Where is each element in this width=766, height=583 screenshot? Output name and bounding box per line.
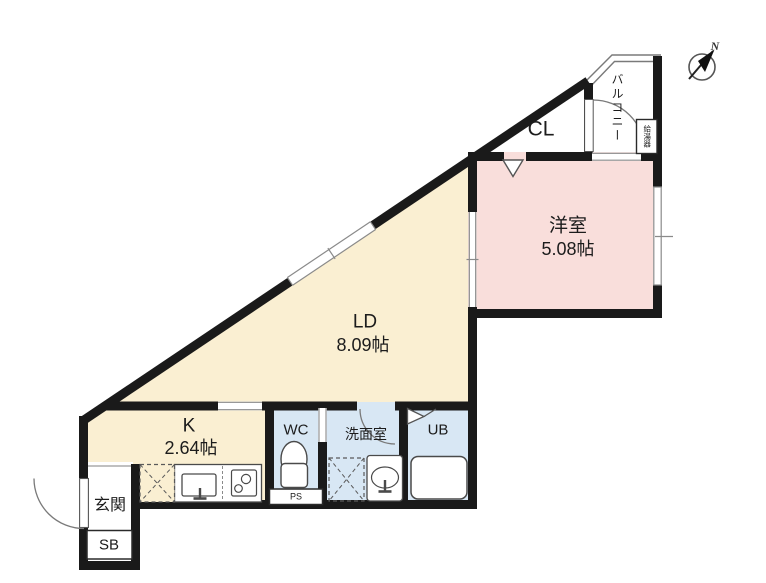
balcony-window bbox=[592, 153, 641, 162]
room-size-ld: 8.09帖 bbox=[336, 336, 389, 354]
western-room-window bbox=[653, 187, 673, 285]
room-label-unit-bath: UB bbox=[428, 423, 449, 438]
kitchen-opening bbox=[218, 402, 262, 411]
label-shoe-box: SB bbox=[99, 538, 119, 553]
label-water-heater: 給湯器 bbox=[643, 125, 651, 148]
compass-icon bbox=[689, 50, 715, 81]
toilet-icon bbox=[281, 442, 308, 488]
room-size-western: 5.08帖 bbox=[541, 240, 594, 258]
entrance-door bbox=[34, 478, 89, 529]
washbasin-icon bbox=[367, 456, 403, 502]
room-label-kitchen: K bbox=[183, 417, 196, 436]
bathtub-icon bbox=[411, 457, 467, 500]
label-pipe-space: PS bbox=[290, 493, 302, 502]
wc-door bbox=[318, 408, 327, 442]
compass-north-label: N bbox=[711, 40, 720, 52]
kitchen-counter bbox=[140, 465, 262, 503]
room-label-wc: WC bbox=[284, 423, 309, 438]
floor-plan-drawing bbox=[0, 0, 766, 583]
room-size-kitchen: 2.64帖 bbox=[164, 439, 217, 457]
room-label-balcony: バルコニー bbox=[611, 73, 623, 143]
room-label-closet: CL bbox=[528, 119, 555, 140]
room-label-washroom: 洗面室 bbox=[345, 427, 387, 441]
room-label-ld: LD bbox=[353, 313, 377, 332]
room-label-entrance: 玄関 bbox=[94, 498, 126, 514]
room-label-western: 洋室 bbox=[549, 217, 587, 236]
floor-plan: LD 8.09帖 洋室 5.08帖 K 2.64帖 WC 洗面室 UB CL バ… bbox=[0, 0, 766, 583]
stove-icon bbox=[232, 470, 257, 496]
